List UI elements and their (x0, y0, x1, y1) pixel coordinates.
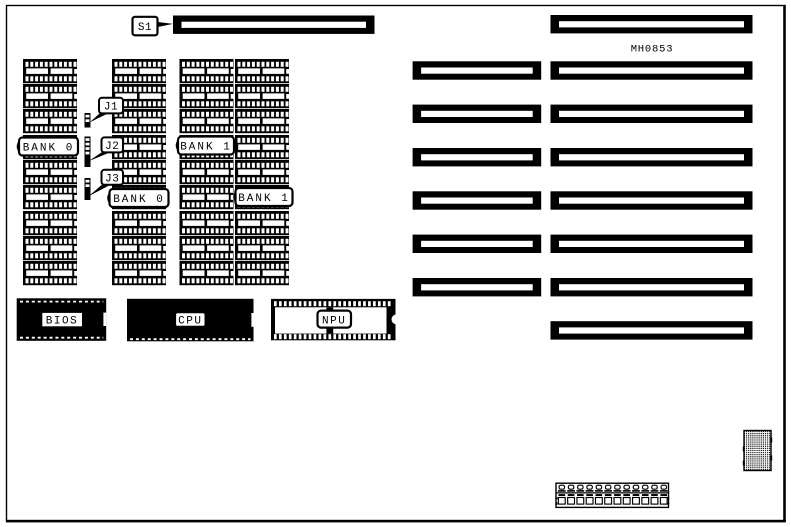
svg-text:J2: J2 (105, 141, 119, 153)
svg-text:NPU: NPU (322, 315, 346, 327)
svg-text:MH0853: MH0853 (631, 44, 674, 56)
svg-text:BANK 1: BANK 1 (180, 142, 232, 154)
svg-text:BANK 1: BANK 1 (238, 193, 290, 205)
svg-text:J1: J1 (104, 102, 118, 114)
svg-text:BIOS: BIOS (46, 316, 78, 328)
svg-text:BANK 0: BANK 0 (113, 194, 165, 206)
svg-text:BANK 0: BANK 0 (23, 143, 75, 155)
svg-text:J3: J3 (105, 173, 119, 185)
svg-text:S1: S1 (138, 22, 152, 34)
svg-text:CPU: CPU (178, 316, 202, 328)
